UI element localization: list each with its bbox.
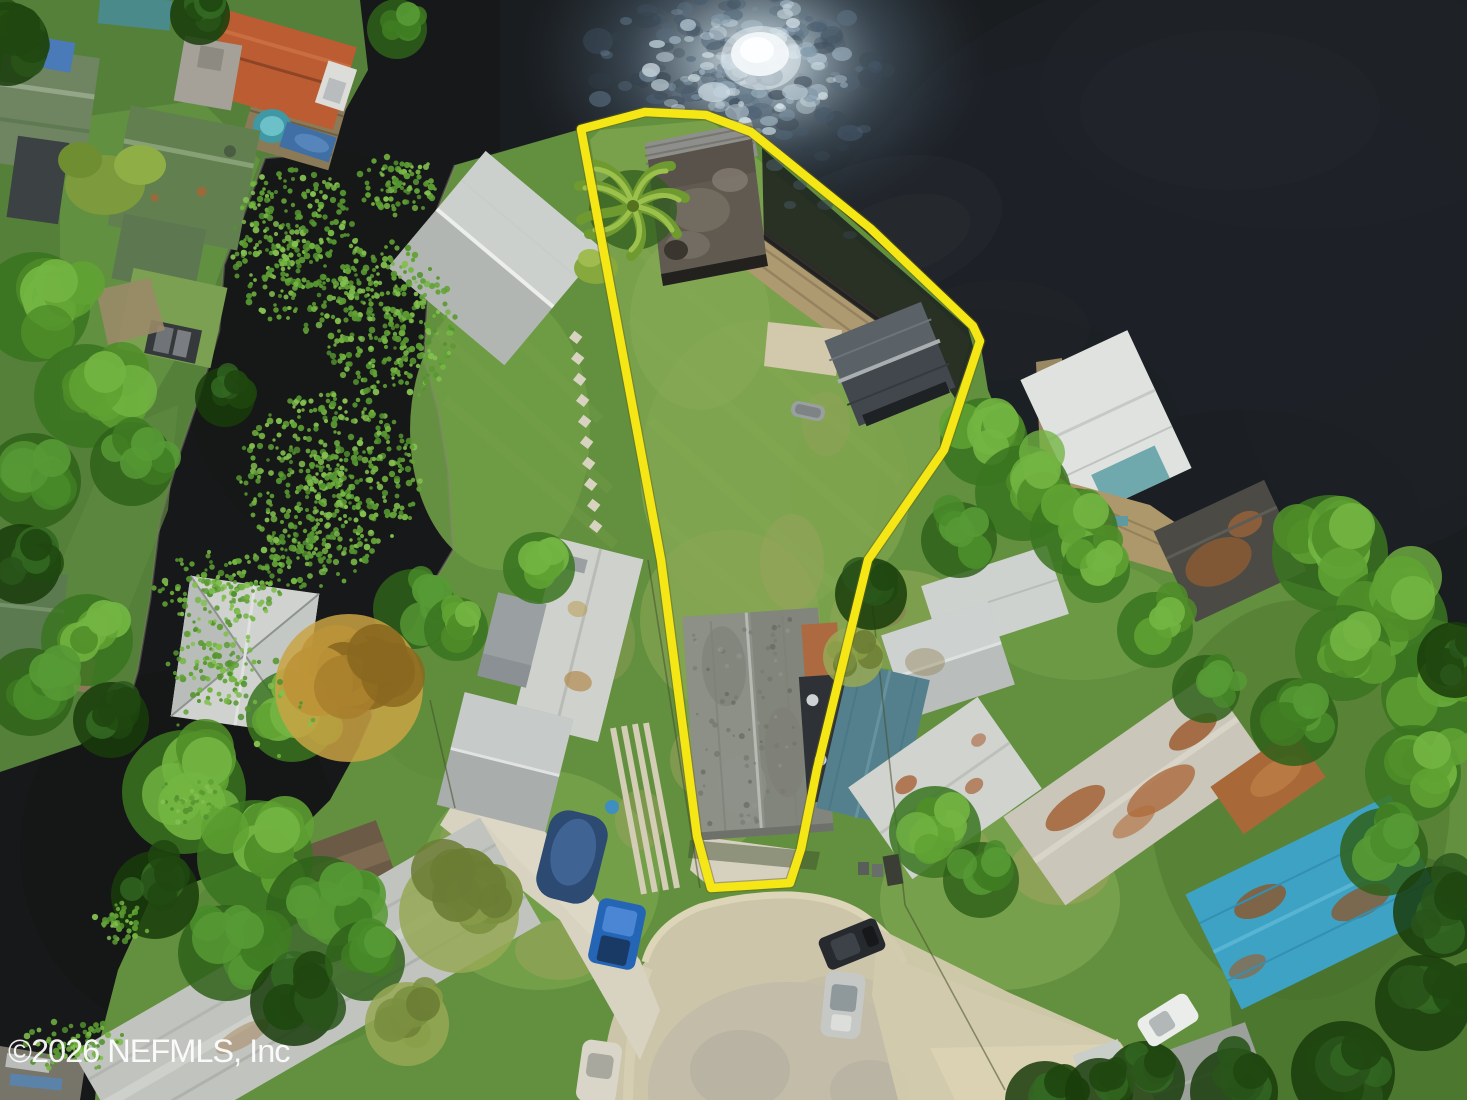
svg-text:©2026 NEFMLS, Inc: ©2026 NEFMLS, Inc: [8, 1033, 290, 1069]
